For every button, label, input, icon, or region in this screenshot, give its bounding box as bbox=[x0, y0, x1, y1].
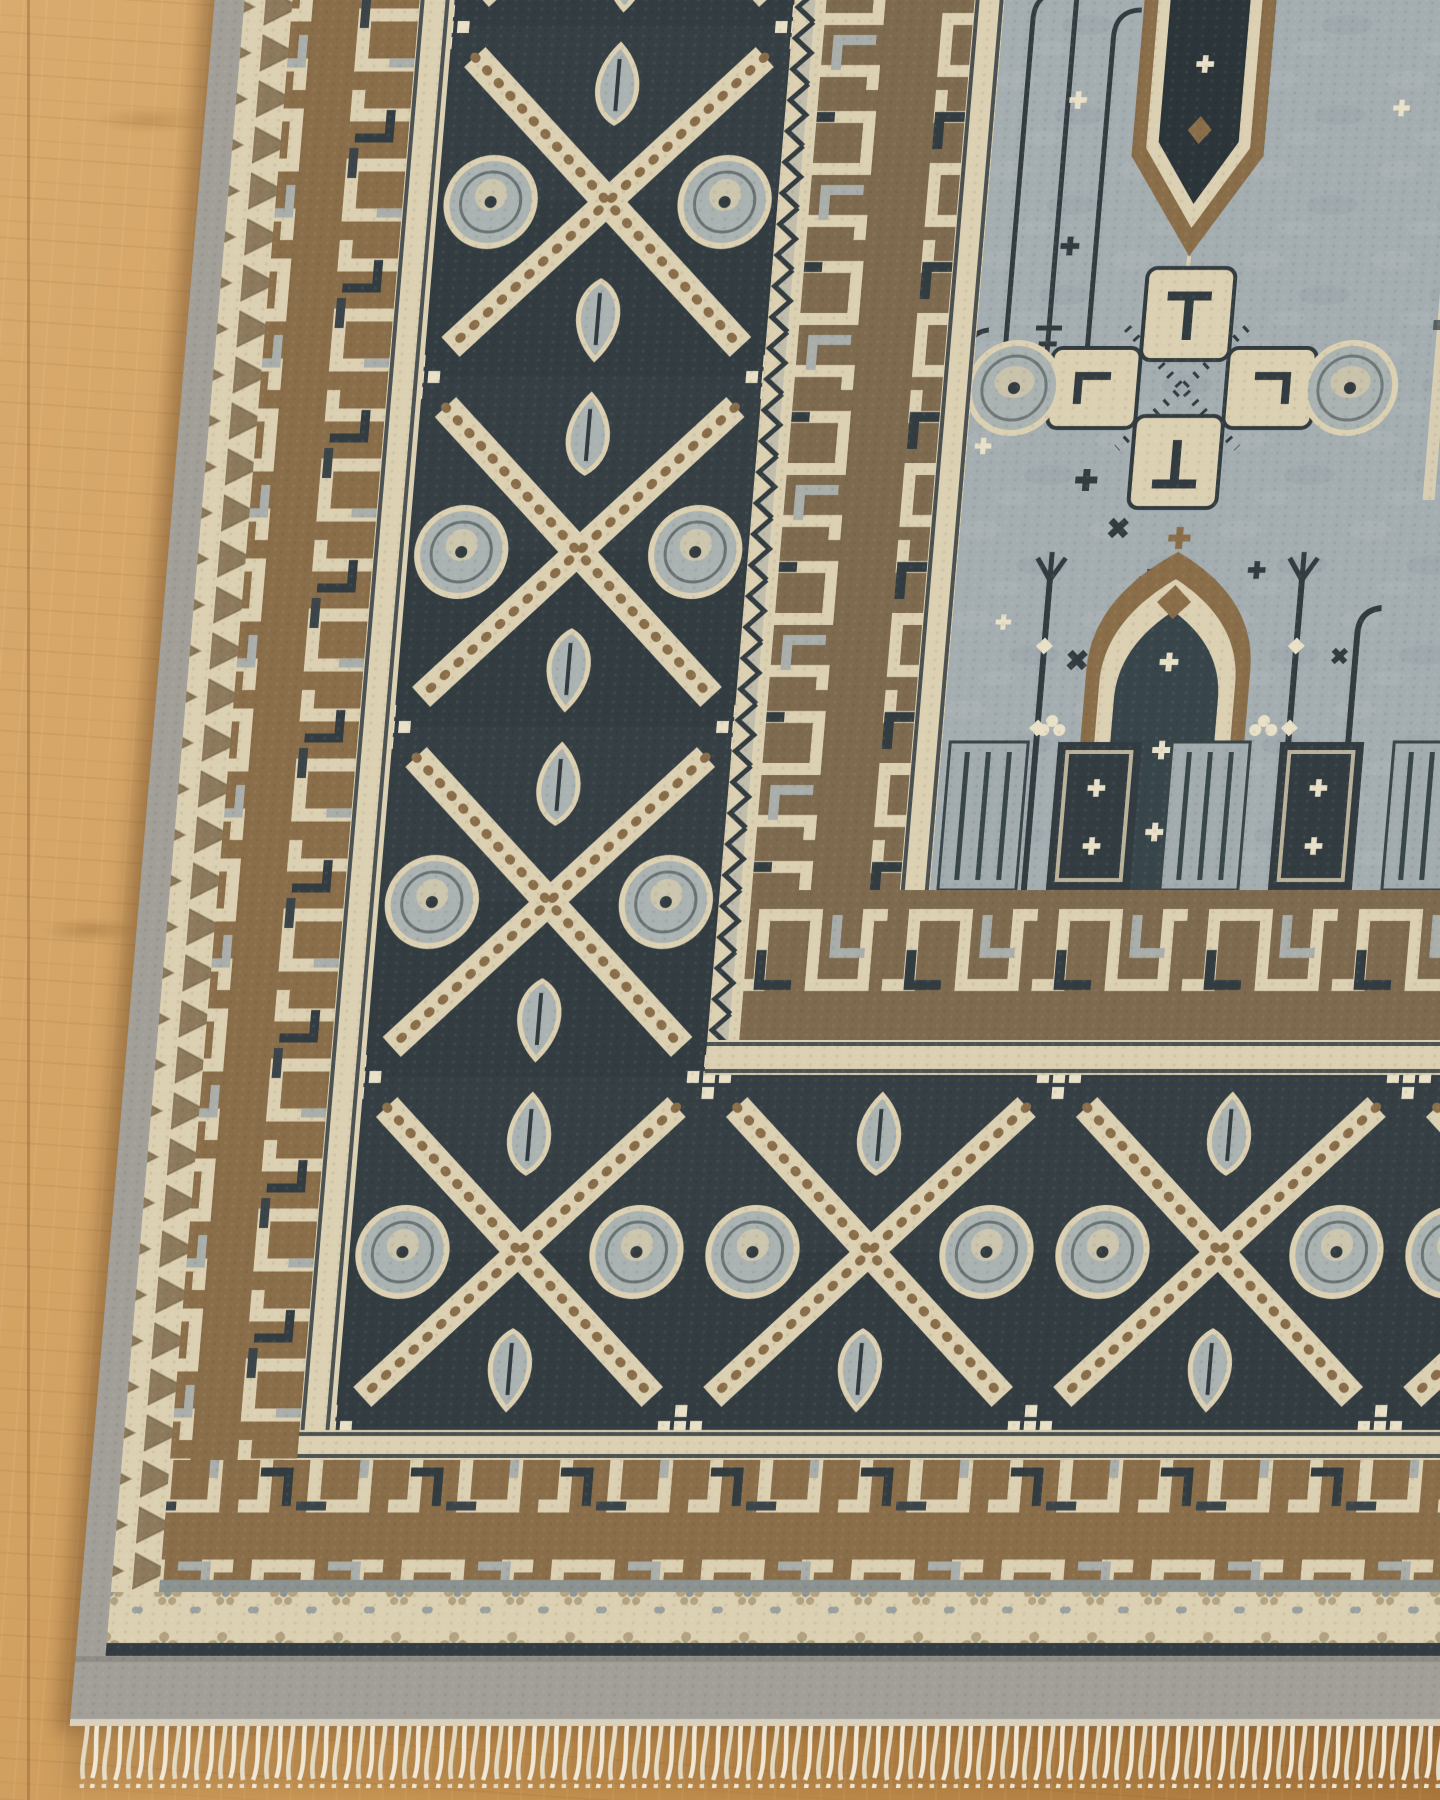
edge-binding-cord bbox=[70, 1719, 1440, 1726]
area-rug bbox=[64, 0, 1440, 1790]
rug-photo bbox=[0, 0, 1440, 1800]
rug-pile bbox=[70, 0, 1440, 1726]
fringe-tassels bbox=[78, 1726, 1440, 1788]
pile-texture bbox=[70, 0, 1440, 1725]
